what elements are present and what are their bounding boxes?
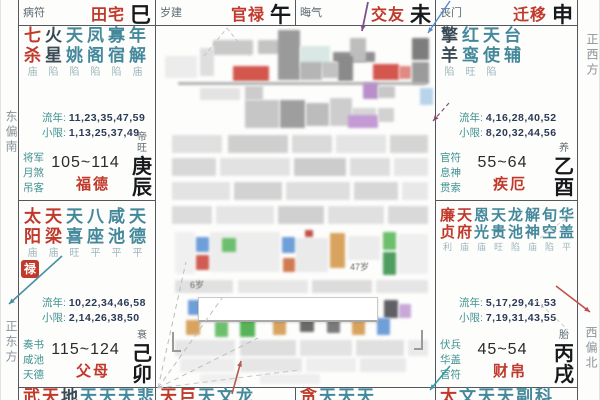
blur-block: [216, 206, 274, 224]
star-char-clipped: 科: [534, 387, 553, 400]
blur-block: [312, 280, 372, 293]
star-column: 八座平: [85, 207, 106, 260]
star-status: 庙: [43, 247, 64, 260]
palace-jie[interactable]: 擎羊陷红鸾旺天使陷台辅流年: 4,16,28,40,52小限: 8,20,32,…: [435, 25, 577, 200]
star-column: 恩光庙: [473, 207, 490, 254]
liunian-numbers: 10,22,34,46,58: [69, 297, 146, 309]
blur-block: [196, 237, 209, 252]
star-status: 陷: [106, 66, 127, 79]
top-strip-qianyi[interactable]: 丧门迁移申: [435, 0, 577, 25]
star-char: 八: [85, 207, 106, 227]
star-status: 旺: [460, 66, 481, 79]
blur-block: [356, 340, 404, 356]
right-bracket-mark: [414, 330, 423, 350]
blur-block: [376, 280, 428, 293]
growth-stage-label: 衰: [135, 330, 149, 341]
star-char: 天: [43, 207, 64, 227]
star-status: 平: [85, 247, 106, 260]
star-status: 旺: [64, 247, 85, 260]
blur-block: [222, 238, 236, 252]
blur-block: [245, 86, 263, 100]
star-char: 天: [127, 207, 148, 227]
blur-block: [420, 88, 433, 105]
star-char: 天: [456, 207, 473, 224]
minor-gods-list: 奏书咸池天德: [23, 338, 44, 383]
star-status: 旺: [490, 241, 507, 254]
xiaoxian-years: 小限: 1,13,25,37,49: [42, 125, 140, 140]
star-column: 华盖平: [558, 207, 575, 254]
star-column: 旬空陷: [541, 207, 558, 254]
star-status: 庙: [22, 247, 43, 260]
blur-block: [354, 182, 398, 200]
xiaoxian-years: 小限: 7,19,31,43,55: [459, 310, 557, 325]
star-char: 年: [127, 26, 148, 46]
blur-block: [330, 233, 345, 268]
star-status: 庙: [456, 241, 473, 254]
blur-block: [278, 30, 300, 80]
star-status: 陷: [507, 241, 524, 254]
year-god-label: 岁建: [160, 4, 182, 20]
star-char: 天: [64, 207, 85, 227]
star-status: 平: [127, 247, 148, 260]
decade-range: 105~114: [43, 154, 128, 172]
star-char-clipped: 天: [337, 387, 356, 400]
blur-block: [286, 182, 350, 200]
star-char: 恩: [473, 207, 490, 224]
star-list: 太阳庙天梁庙天喜旺八座平咸池平天德平: [22, 207, 148, 260]
year-god-label: 丧门: [440, 4, 462, 20]
xiaoxian-numbers: 2,14,26,38,50: [69, 312, 140, 324]
star-status: 庙: [524, 241, 541, 254]
blur-block: [213, 40, 253, 55]
bottom-palace-sliver[interactable]: 贪天天天: [295, 387, 439, 400]
star-char: 喜: [64, 227, 85, 247]
blur-block: [348, 236, 380, 260]
star-char-clipped: 悲: [136, 387, 155, 400]
star-char: 鸾: [460, 46, 481, 66]
xiaoxian-years: 小限: 2,14,26,38,50: [42, 310, 140, 325]
compass-due-west: 正西方: [584, 33, 600, 78]
star-char: 辅: [502, 46, 523, 66]
blur-block: [234, 182, 282, 200]
growth-stage-label: 养: [557, 143, 571, 154]
decade-range: 45~54: [460, 341, 545, 359]
star-char: 宿: [106, 46, 127, 66]
star-char: 使: [481, 46, 502, 66]
star-char: 龙: [507, 207, 524, 224]
star-char: 姚: [64, 46, 85, 66]
blur-block: [328, 206, 384, 224]
blur-block: [292, 135, 332, 153]
star-char-clipped: 天: [496, 387, 515, 400]
liunian-label: 流年:: [42, 112, 66, 124]
left-bracket-mark: [172, 332, 181, 352]
star-column: 廉贞利: [439, 207, 456, 254]
page-left-edge: [0, 0, 1, 400]
blur-block: [283, 258, 295, 272]
blur-block: [233, 66, 269, 81]
star-status: 陷: [481, 66, 502, 79]
star-char: 红: [460, 26, 481, 46]
top-strip-tianzhai[interactable]: 病符田宅巳: [18, 0, 155, 25]
star-char-clipped: 地: [60, 387, 79, 400]
decade-range: 55~64: [460, 154, 545, 172]
star-status: 陷: [64, 66, 85, 79]
star-char-clipped: 龙: [235, 387, 254, 400]
blur-block: [348, 115, 378, 128]
star-char: 星: [43, 46, 64, 66]
star-char: 贞: [439, 224, 456, 241]
blur-block: [350, 158, 390, 176]
stem-branch-label: 丙戌: [553, 344, 575, 386]
top-strip-jiaoyou[interactable]: 晦气交友未: [295, 0, 435, 25]
palace-name-label: 田宅: [91, 1, 125, 25]
star-char: 台: [502, 26, 523, 46]
star-column: 红鸾旺: [460, 26, 481, 79]
blur-block: [363, 83, 378, 99]
star-char-clipped: 天: [477, 387, 496, 400]
star-char-clipped: 副: [515, 387, 534, 400]
branch-label: 未: [410, 0, 431, 29]
stem-branch-label: 己卯: [131, 344, 153, 386]
star-char: 华: [558, 207, 575, 224]
blur-block: [200, 374, 240, 384]
xiaoxian-label: 小限:: [42, 127, 66, 139]
blur-block: [377, 318, 390, 335]
palace-fude[interactable]: 七杀庙火星陷天姚陷凤阁陷寡宿陷年解庙流年: 11,23,35,47,59小限: …: [18, 25, 155, 200]
branch-label: 午: [270, 0, 291, 29]
blur-block: [306, 358, 356, 372]
palace-name-label: 交友: [371, 1, 405, 25]
ziwei-chart: 东偏南 正东方 正西方 西偏北 6岁47岁 病符田宅巳岁建官禄午晦气交友未丧门迁…: [0, 0, 600, 400]
star-char: 盖: [558, 224, 575, 241]
star-char: 阳: [22, 227, 43, 247]
blur-block: [238, 280, 308, 293]
star-status: 平: [106, 247, 127, 260]
star-char: 天: [490, 207, 507, 224]
arrow-head: [9, 299, 15, 304]
minor-gods-list: 将军月煞吊客: [23, 151, 44, 196]
liunian-label: 流年:: [459, 112, 483, 124]
blur-block: [200, 88, 240, 100]
blur-block: [300, 62, 322, 80]
star-char: 廉: [439, 207, 456, 224]
liunian-label: 流年:: [459, 297, 483, 309]
xiaoxian-numbers: 1,13,25,37,49: [69, 127, 140, 139]
blur-block: [280, 100, 305, 128]
arrow-head: [584, 307, 590, 312]
blur-block: [378, 86, 395, 98]
star-char-clipped: 天: [117, 387, 136, 400]
star-char: 贵: [490, 224, 507, 241]
blur-block: [383, 252, 396, 275]
blur-block: [245, 100, 279, 128]
star-char: 解: [127, 46, 148, 66]
blur-block: [294, 158, 346, 176]
decade-range: 115~124: [43, 341, 128, 359]
arrow-head: [361, 25, 366, 31]
star-char: 德: [127, 227, 148, 247]
blur-block: [306, 103, 329, 126]
liunian-numbers: 11,23,35,47,59: [69, 112, 146, 124]
minor-gods-list: 伏兵华盖官符: [440, 338, 461, 383]
star-status: 陷: [541, 241, 558, 254]
blur-block: [172, 206, 212, 224]
star-list: 七杀庙火星陷天姚陷凤阁陷寡宿陷年解庙: [22, 26, 148, 79]
xiaoxian-numbers: 8,20,32,44,56: [486, 127, 557, 139]
xiaoxian-years: 小限: 8,20,32,44,56: [459, 125, 557, 140]
blur-block: [394, 158, 428, 176]
liunian-years: 流年: 10,22,34,46,58: [42, 295, 146, 310]
star-status: 庙: [473, 241, 490, 254]
star-char-clipped: 巨: [178, 387, 197, 400]
blur-block: [390, 135, 428, 153]
star-column: 天喜旺: [64, 207, 85, 260]
blur-block: [399, 66, 411, 79]
star-column: 天贵旺: [490, 207, 507, 254]
blur-block: [172, 158, 216, 176]
star-column: 天梁庙: [43, 207, 64, 260]
star-char: 擎: [439, 26, 460, 46]
palace-name-label: 父母: [58, 360, 128, 381]
growth-stage-label: 胎: [557, 330, 571, 341]
star-column: 天使陷: [481, 26, 502, 79]
blur-block: [412, 38, 429, 60]
star-char: 池: [507, 224, 524, 241]
star-status: 庙: [127, 66, 148, 79]
star-char-clipped: 天: [356, 387, 375, 400]
grid-line: [577, 0, 578, 400]
liunian-label: 流年:: [42, 297, 66, 309]
star-status: 陷: [439, 66, 460, 79]
star-status: 平: [558, 241, 575, 254]
palace-name-label: 官禄: [231, 1, 265, 25]
bottom-palace-sliver[interactable]: 太文天天副科: [435, 387, 581, 400]
star-char: 神: [524, 224, 541, 241]
star-status: 利: [439, 241, 456, 254]
blur-block: [240, 340, 296, 356]
star-char: 天: [481, 26, 502, 46]
liunian-years: 流年: 5,17,29,41,53: [459, 295, 557, 310]
xiaoxian-numbers: 7,19,31,43,55: [486, 312, 557, 324]
liunian-numbers: 5,17,29,41,53: [486, 297, 557, 309]
star-char-clipped: 天: [318, 387, 337, 400]
blur-block: [260, 374, 320, 384]
blur-block: [373, 64, 399, 80]
star-status: 庙: [22, 66, 43, 79]
star-char-clipped: 武: [22, 387, 41, 400]
blur-block: [273, 320, 286, 335]
star-char: 天: [64, 26, 85, 46]
star-char: 阁: [85, 46, 106, 66]
blur-text: 47岁: [350, 260, 369, 273]
star-char: 羊: [439, 46, 460, 66]
star-char: 池: [106, 227, 127, 247]
star-char: 空: [541, 224, 558, 241]
blur-block: [402, 182, 428, 200]
blur-block: [336, 135, 386, 153]
growth-stage-label: 帝旺: [135, 132, 149, 154]
star-char: 咸: [106, 207, 127, 227]
star-column: 龙池陷: [507, 207, 524, 254]
star-column: 天姚陷: [64, 26, 85, 79]
star-char: 杀: [22, 46, 43, 66]
blur-block: [175, 340, 235, 356]
blur-block: [384, 300, 398, 318]
blur-block: [399, 304, 411, 318]
star-column: 凤阁陷: [85, 26, 106, 79]
star-char-clipped: 天: [98, 387, 117, 400]
top-strip-guanlu[interactable]: 岁建官禄午: [155, 0, 295, 25]
blur-block: [398, 234, 428, 274]
star-column: 七杀庙: [22, 26, 43, 79]
compass-west-north: 西偏北: [583, 326, 600, 371]
blur-block: [322, 62, 338, 78]
blur-block: [186, 320, 200, 335]
blur-block: [300, 340, 352, 356]
star-column: 台辅: [502, 26, 523, 79]
star-char: 解: [524, 207, 541, 224]
star-column: 咸池平: [106, 207, 127, 260]
highlight-tooltip-box: [198, 297, 378, 322]
palace-name-label: 财帛: [475, 360, 545, 381]
star-char: 座: [85, 227, 106, 247]
stem-branch-label: 庚辰: [131, 157, 153, 199]
blur-block: [228, 135, 288, 153]
blur-block: [388, 206, 428, 224]
blur-block: [240, 358, 302, 372]
liunian-numbers: 4,16,28,40,52: [486, 112, 557, 124]
star-column: 寡宿陷: [106, 26, 127, 79]
blur-block: [378, 108, 394, 122]
star-char-clipped: 文: [216, 387, 235, 400]
palace-name-label: 福德: [58, 173, 128, 194]
star-list: 廉贞利天府庙恩光庙天贵旺龙池陷解神庙旬空陷华盖平: [439, 207, 575, 254]
star-char-clipped: 太: [439, 387, 458, 400]
blur-block: [282, 237, 295, 253]
star-char-clipped: 文: [458, 387, 477, 400]
star-column: 擎羊陷: [439, 26, 460, 79]
palace-caibo[interactable]: 廉贞利天府庙恩光庙天贵旺龙池陷解神庙旬空陷华盖平流年: 5,17,29,41,5…: [435, 200, 577, 387]
palace-name-label: 迁移: [513, 1, 547, 25]
star-char-clipped: 天: [79, 387, 98, 400]
star-char: 火: [43, 26, 64, 46]
star-char: 旬: [541, 207, 558, 224]
blur-text: 6岁: [190, 278, 204, 291]
star-char: 寡: [106, 26, 127, 46]
star-column: 天府庙: [456, 207, 473, 254]
star-char: 府: [456, 224, 473, 241]
stem-branch-label: 乙酉: [553, 157, 575, 199]
blur-block: [178, 82, 426, 85]
year-god-label: 晦气: [300, 4, 322, 20]
hua-lu-badge: 禄: [21, 260, 39, 278]
blur-block: [196, 255, 209, 270]
blur-block: [278, 206, 324, 224]
star-column: 解神庙: [524, 207, 541, 254]
bottom-palace-sliver[interactable]: 武天地天天天悲: [18, 387, 159, 400]
blur-block: [215, 322, 228, 337]
blur-block: [172, 182, 230, 200]
blur-block: [172, 135, 222, 153]
year-god-label: 病符: [23, 4, 45, 20]
grid-line: [155, 0, 156, 400]
star-column: 天德平: [127, 207, 148, 260]
star-status: 陷: [85, 66, 106, 79]
blur-block: [338, 56, 353, 81]
star-status: 陷: [43, 66, 64, 79]
star-char: 凤: [85, 26, 106, 46]
blur-block: [305, 230, 313, 237]
blur-block: [210, 232, 280, 272]
blur-block: [175, 232, 195, 274]
minor-gods-list: 官符息神贯索: [440, 151, 461, 196]
palace-name-label: 疾厄: [475, 173, 545, 194]
star-char: 七: [22, 26, 43, 46]
blur-block: [200, 48, 214, 76]
blur-block: [412, 62, 429, 84]
liunian-years: 流年: 4,16,28,40,52: [459, 110, 557, 125]
star-char-clipped: 天: [41, 387, 60, 400]
star-char: 光: [473, 224, 490, 241]
star-char: 太: [22, 207, 43, 227]
blur-block: [296, 238, 328, 272]
star-char-clipped: 天: [197, 387, 216, 400]
star-list: 擎羊陷红鸾旺天使陷台辅: [439, 26, 523, 79]
blur-block: [360, 358, 406, 372]
bottom-palace-sliver[interactable]: 天巨天文龙: [155, 387, 299, 400]
blur-block: [165, 56, 197, 78]
star-char-clipped: 贪: [299, 387, 318, 400]
blur-block: [220, 158, 290, 176]
blur-block: [352, 320, 365, 335]
xiaoxian-label: 小限:: [459, 127, 483, 139]
star-column: 年解庙: [127, 26, 148, 79]
star-column: 火星陷: [43, 26, 64, 79]
palace-fumu[interactable]: 太阳庙天梁庙天喜旺八座平咸池平天德平禄流年: 10,22,34,46,58小限:…: [18, 200, 155, 387]
star-char: 梁: [43, 227, 64, 247]
star-char-clipped: 天: [159, 387, 178, 400]
xiaoxian-label: 小限:: [459, 312, 483, 324]
liunian-years: 流年: 11,23,35,47,59: [42, 110, 145, 125]
xiaoxian-label: 小限:: [42, 312, 66, 324]
star-column: 太阳庙: [22, 207, 43, 260]
blur-block: [383, 232, 396, 250]
blur-block: [180, 358, 235, 372]
